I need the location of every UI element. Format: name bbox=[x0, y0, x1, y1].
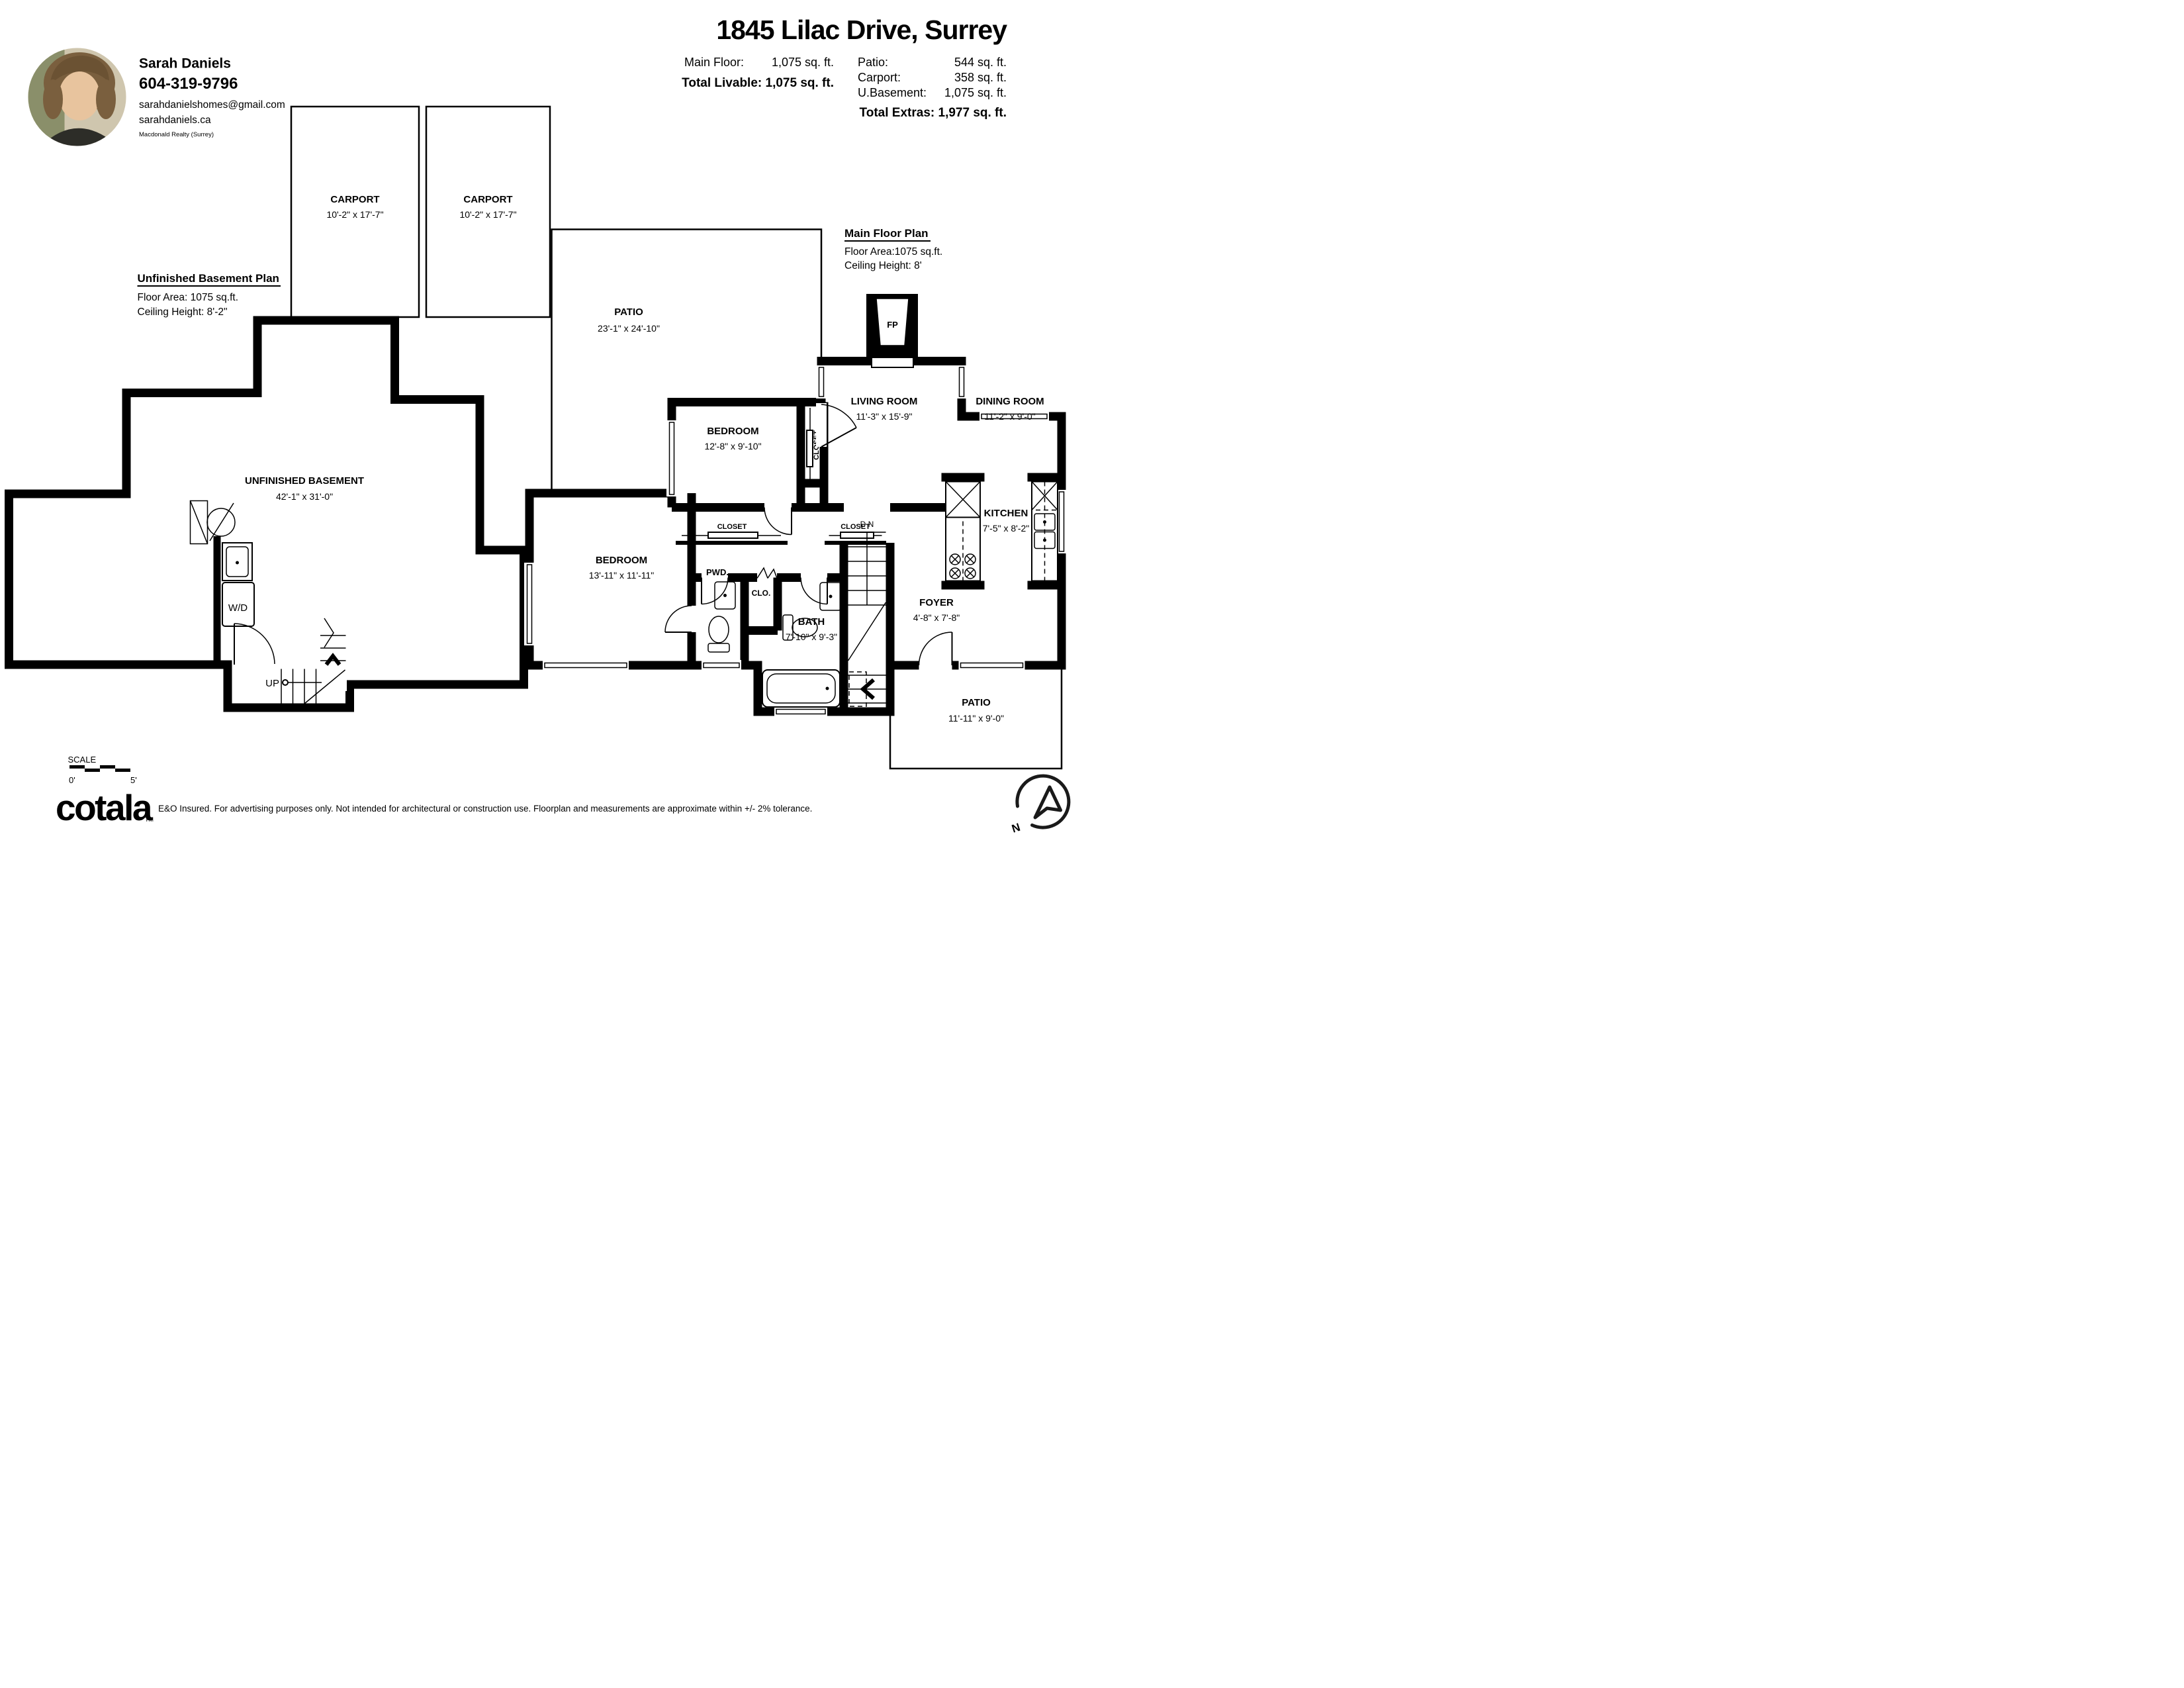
window-bedroom2-left bbox=[524, 563, 535, 645]
patio-bottom-label: PATIO bbox=[962, 697, 991, 708]
avatar bbox=[28, 48, 128, 153]
basement-floor-area: Floor Area: 1075 sq.ft. bbox=[138, 292, 239, 303]
main-ceiling: Ceiling Height: 8' bbox=[844, 260, 922, 271]
pwd-label: PWD. bbox=[706, 567, 729, 577]
compass-needle-icon bbox=[1035, 787, 1061, 818]
stairs-up-label: UP bbox=[265, 678, 279, 689]
bath-dims: 7'-10" x 9'-3" bbox=[786, 632, 837, 642]
patio-top-label: PATIO bbox=[614, 306, 643, 318]
agent-name: Sarah Daniels bbox=[139, 56, 231, 71]
main-floor-plan: PATIO 23'-1" x 24'-10" PATIO 11'-11" x 9… bbox=[524, 230, 1067, 769]
clo-label: CLO. bbox=[752, 588, 771, 598]
washer-dryer-label: W/D bbox=[228, 602, 248, 614]
bath-label: BATH bbox=[798, 616, 825, 628]
laundry-wall-stub bbox=[214, 536, 221, 665]
footer: cotala TM E&O Insured. For advertising p… bbox=[56, 787, 812, 828]
bedroom2-label: BEDROOM bbox=[596, 555, 647, 566]
bathtub-icon bbox=[762, 670, 840, 707]
window-pwd-bottom bbox=[702, 660, 741, 671]
agent-phone: 604-319-9796 bbox=[139, 75, 238, 93]
carport-right-label: CARPORT bbox=[463, 194, 512, 205]
stat-carport-label: Carport: bbox=[858, 71, 901, 84]
fireplace: FP bbox=[866, 294, 918, 367]
carport-left-dims: 10'-2" x 17'-7" bbox=[326, 209, 383, 220]
compass: N bbox=[1010, 776, 1069, 835]
kitchen-dims: 7'-5" x 8'-2" bbox=[983, 523, 1030, 534]
avatar-face bbox=[59, 71, 100, 120]
stat-total-livable: Total Livable: 1,075 sq. ft. bbox=[682, 76, 834, 90]
window-living-right bbox=[956, 365, 967, 399]
stat-ubasement-label: U.Basement: bbox=[858, 86, 927, 99]
main-heading: Main Floor Plan bbox=[844, 227, 929, 240]
basement-room-dims: 42'-1" x 31'-0" bbox=[276, 491, 333, 502]
stat-ubasement-value: 1,075 sq. ft. bbox=[944, 86, 1007, 99]
dining-label: DINING ROOM bbox=[976, 396, 1044, 407]
living-label: LIVING ROOM bbox=[851, 396, 918, 407]
living-dims: 11'-3" x 15'-9" bbox=[856, 411, 912, 422]
main-floor-area: Floor Area:1075 sq.ft. bbox=[844, 246, 942, 258]
basement-room-label: UNFINISHED BASEMENT bbox=[245, 475, 364, 487]
stat-main-floor-label: Main Floor: bbox=[684, 56, 744, 69]
brand-logo: cotala bbox=[56, 787, 153, 828]
dining-dims: 11'-2" x 9'-0" bbox=[984, 411, 1035, 422]
basement-heading-block: Unfinished Basement Plan Floor Area: 107… bbox=[138, 272, 281, 318]
stat-main-floor-value: 1,075 sq. ft. bbox=[772, 56, 834, 69]
window-living-left bbox=[816, 365, 827, 399]
basement-walls bbox=[9, 320, 524, 708]
basement-plan: W/D UP UNFINISHED BASEMENT 42'-1" x 31'-… bbox=[9, 320, 524, 708]
bedroom1-dims: 12'-8" x 9'-10" bbox=[704, 441, 761, 451]
laundry-sink-icon bbox=[222, 543, 252, 581]
fridge-icon bbox=[946, 482, 980, 518]
stat-carport-value: 358 sq. ft. bbox=[954, 71, 1007, 84]
window-bath-bottom bbox=[774, 706, 827, 717]
brand-tm: TM bbox=[145, 816, 154, 823]
stat-total-extras: Total Extras: 1,977 sq. ft. bbox=[860, 106, 1007, 120]
window-foyer-bottom bbox=[959, 660, 1025, 671]
carport-right-dims: 10'-2" x 17'-7" bbox=[459, 209, 516, 220]
scale-bar: SCALE 0' 5' bbox=[68, 755, 137, 785]
closet-left-label: CLOSET bbox=[717, 523, 747, 531]
patio-top-dims: 23'-1" x 24'-10" bbox=[598, 323, 660, 334]
stat-patio-value: 544 sq. ft. bbox=[954, 56, 1007, 69]
agent-email: sarahdanielshomes@gmail.com bbox=[139, 99, 285, 111]
kitchen-counter-left bbox=[946, 482, 980, 581]
foyer-label: FOYER bbox=[919, 597, 954, 608]
window-bedroom2-bottom bbox=[543, 660, 629, 671]
agent-website: sarahdaniels.ca bbox=[139, 115, 211, 126]
patio-bottom-dims: 11'-11" x 9'-0" bbox=[948, 713, 1004, 724]
floorplan-sheet: Sarah Daniels 604-319-9796 sarahdanielsh… bbox=[0, 0, 1092, 844]
window-bedroom1-left bbox=[666, 420, 677, 496]
foyer-dims: 4'-8" x 7'-8" bbox=[913, 612, 960, 623]
agent-card: Sarah Daniels 604-319-9796 sarahdanielsh… bbox=[28, 48, 285, 153]
scale-end: 5' bbox=[130, 775, 137, 785]
kitchen-counter-right bbox=[1032, 482, 1058, 581]
header-stats: 1845 Lilac Drive, Surrey Main Floor: 1,0… bbox=[682, 15, 1007, 120]
disclaimer: E&O Insured. For advertising purposes on… bbox=[158, 804, 812, 814]
stat-patio-label: Patio: bbox=[858, 56, 888, 69]
kitchen-label: KITCHEN bbox=[984, 508, 1028, 519]
stairs-down-label: D N bbox=[860, 520, 874, 529]
basement-heading: Unfinished Basement Plan bbox=[138, 272, 279, 285]
bedroom1-label: BEDROOM bbox=[707, 426, 758, 437]
page-title: 1845 Lilac Drive, Surrey bbox=[716, 15, 1007, 45]
bedroom2-dims: 13'-11" x 11'-11" bbox=[589, 570, 655, 581]
basement-door-opening bbox=[232, 659, 269, 671]
washer-dryer-icon: W/D bbox=[222, 583, 254, 626]
scale-label: SCALE bbox=[68, 755, 97, 765]
carports: CARPORT 10'-2" x 17'-7" CARPORT 10'-2" x… bbox=[291, 107, 550, 317]
fireplace-label: FP bbox=[887, 320, 898, 330]
agent-brokerage: Macdonald Realty (Surrey) bbox=[139, 131, 214, 138]
basement-ceiling: Ceiling Height: 8'-2" bbox=[138, 306, 228, 318]
main-heading-block: Main Floor Plan Floor Area:1075 sq.ft. C… bbox=[844, 227, 942, 271]
scale-start: 0' bbox=[69, 775, 75, 785]
compass-north-label: N bbox=[1010, 821, 1022, 835]
carport-left-label: CARPORT bbox=[330, 194, 379, 205]
